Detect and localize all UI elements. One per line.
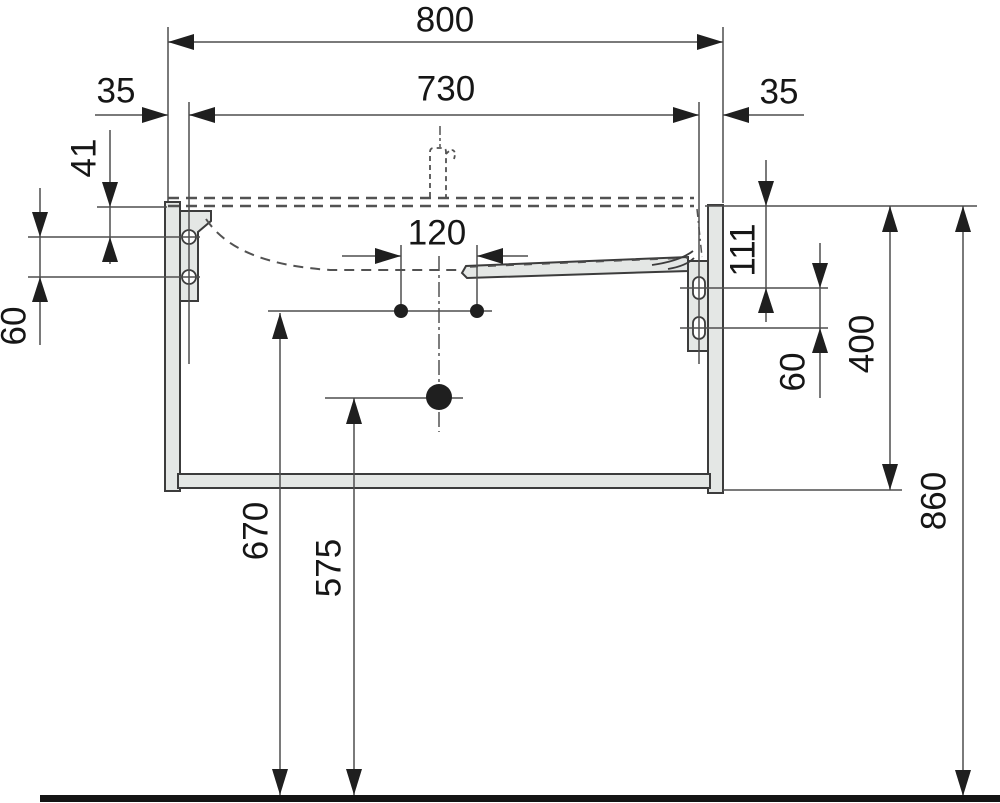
- arrowhead-left-icon: [168, 34, 194, 50]
- arrowhead-up-icon: [32, 277, 48, 302]
- arrowhead-down-icon: [955, 770, 971, 796]
- dim-overall-width-label: 800: [416, 1, 474, 40]
- dim-slot-top-offset-right: 111: [724, 160, 775, 322]
- dim-top-height-label: 860: [915, 472, 954, 530]
- dim-offset-right: 35: [723, 73, 804, 124]
- dim-slot-spacing-right: 60: [774, 243, 829, 398]
- dim-offset-left: 35: [95, 72, 168, 124]
- dim-hole-spacing-left-label: 60: [0, 307, 34, 346]
- arrowhead-down-icon: [346, 769, 362, 795]
- arrowhead-right-icon: [375, 248, 401, 264]
- dim-supply-spacing: 120: [342, 214, 528, 312]
- arrowhead-up-icon: [955, 206, 971, 232]
- dimension-annotations: 800 730 35 35 41: [0, 1, 977, 797]
- drain-outlet-marker: [426, 384, 452, 410]
- arrowhead-right-icon: [142, 107, 168, 123]
- arrowhead-left-icon: [477, 248, 503, 264]
- dim-hole-top-offset-left-label: 41: [65, 139, 104, 178]
- arrowhead-up-icon: [272, 313, 288, 339]
- dim-offset-left-label: 35: [97, 72, 136, 111]
- tap-hidden-outline: [430, 148, 446, 197]
- dim-drain-height: 575: [310, 398, 363, 795]
- arrowhead-up-icon: [882, 206, 898, 232]
- dim-slot-spacing-right-label: 60: [774, 353, 813, 392]
- dim-top-height: 860: [915, 206, 972, 796]
- arrowhead-left-icon: [723, 107, 749, 123]
- arrowhead-down-icon: [272, 769, 288, 795]
- arrowhead-down-icon: [32, 212, 48, 237]
- drawing-canvas: 800 730 35 35 41: [0, 0, 1000, 803]
- arrowhead-up-icon: [102, 237, 118, 262]
- dim-drain-height-label: 575: [310, 539, 349, 597]
- arrowhead-right-icon: [673, 107, 699, 123]
- arrowhead-down-icon: [102, 182, 118, 207]
- cabinet-bottom-shelf: [178, 474, 710, 488]
- dim-offset-right-label: 35: [760, 73, 799, 112]
- arrowhead-down-icon: [758, 181, 774, 206]
- dim-supply-height: 670: [237, 313, 289, 795]
- mounting-bracket-left: [180, 211, 211, 301]
- supply-connection-marker-left: [394, 304, 408, 318]
- arrowhead-up-icon: [758, 288, 774, 313]
- arrowhead-down-icon: [812, 263, 828, 288]
- dim-cabinet-height-label: 400: [843, 315, 882, 373]
- dim-supply-spacing-label: 120: [408, 214, 466, 253]
- floor-line: [40, 795, 1000, 802]
- tap-spout-hook: [446, 150, 455, 159]
- arrowhead-left-icon: [189, 107, 215, 123]
- arrowhead-up-icon: [346, 398, 362, 424]
- dim-hole-top-offset-left: 41: [65, 130, 168, 264]
- supply-connection-marker-right: [470, 304, 484, 318]
- technical-drawing: 800 730 35 35 41: [0, 0, 1000, 803]
- cabinet-right-side-panel: [708, 205, 723, 493]
- cabinet-left-side-panel: [165, 202, 180, 491]
- dim-slot-top-offset-right-label: 111: [724, 223, 763, 276]
- dim-cabinet-height: 400: [843, 206, 899, 490]
- arrowhead-right-icon: [697, 34, 723, 50]
- dim-supply-height-label: 670: [237, 502, 276, 560]
- dim-fixing-centers-label: 730: [417, 70, 475, 109]
- arrowhead-up-icon: [812, 328, 828, 353]
- arrowhead-down-icon: [882, 464, 898, 490]
